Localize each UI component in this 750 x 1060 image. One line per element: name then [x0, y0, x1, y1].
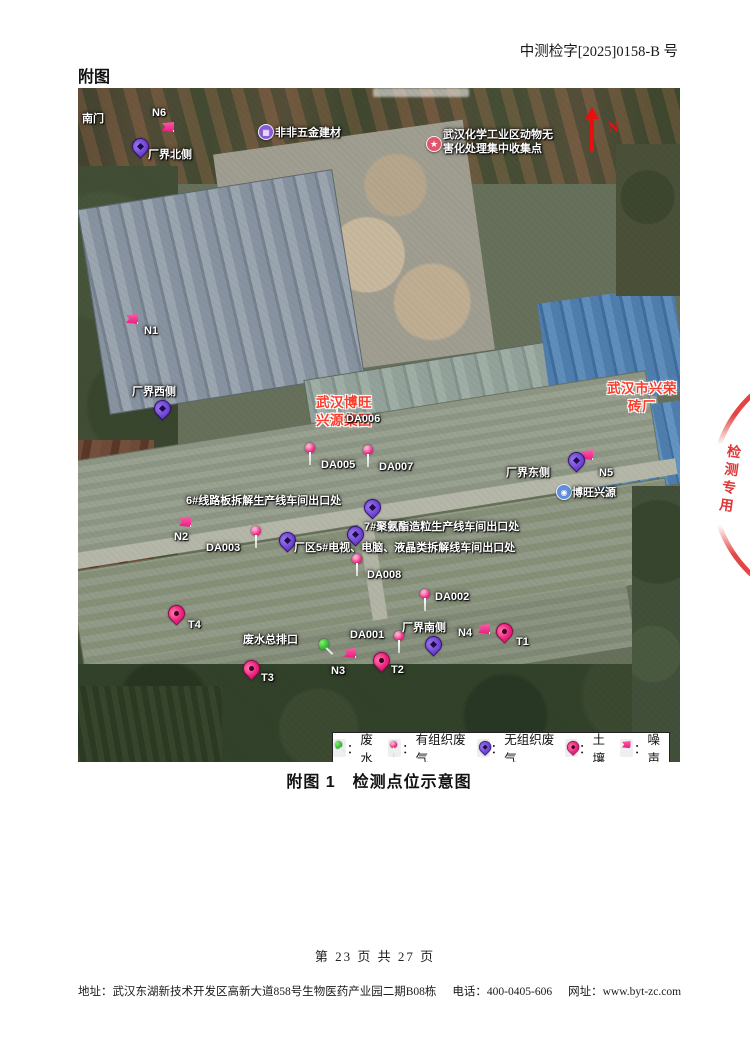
map-point-label: 南门: [82, 112, 104, 126]
organized-gas-balloon-icon: [420, 589, 430, 599]
map-point-label: 非非五金建材: [275, 126, 341, 140]
map-point-label: DA001: [350, 628, 384, 642]
noise-flag-icon: [179, 517, 191, 527]
seal-text: 检测专用: [715, 443, 745, 517]
organized-gas-balloon-icon: [352, 554, 362, 564]
map-point-label: N3: [331, 664, 345, 678]
poi-icon: ◉: [556, 484, 572, 500]
legend-item: ：土壤: [565, 729, 614, 763]
map-point-label: 厂界东侧: [506, 466, 550, 480]
map-point-label: N6: [152, 106, 166, 120]
map-point-label: T4: [188, 618, 201, 632]
spin-legend-icon: [565, 739, 578, 757]
footer-contact-line: 地址：武汉东湖新技术开发区高新大道858号生物医药产业园二期B08栋 电话：40…: [78, 983, 678, 999]
map-point-label: DA003: [206, 541, 240, 555]
legend-label: 有组织废气: [416, 729, 471, 763]
legend-item: ：噪声: [620, 729, 669, 763]
poi-icon: ▦: [258, 124, 274, 140]
doc-number: 中测检字[2025]0158-B 号: [520, 40, 678, 61]
page-number: 第 23 页 共 27 页: [0, 946, 750, 965]
document-page: { "page": { "doc_number": "中测检字[2025]015…: [0, 0, 750, 1060]
ppin-legend-icon: [477, 739, 490, 757]
marker-layer: 南门N6厂界北侧▦非非五金建材★武汉化学工业区动物无害化处理集中收集点N1厂界西…: [78, 88, 680, 762]
north-label: N: [608, 120, 619, 137]
map-point-label: DA006: [346, 412, 380, 426]
seal-ring-icon: [710, 392, 750, 582]
map-point-label: DA008: [367, 568, 401, 582]
legend-label: 废水: [360, 729, 382, 763]
star-poi-icon: ★: [426, 136, 442, 152]
map-point-label: DA007: [379, 460, 413, 474]
map-point-label: N4: [458, 626, 472, 640]
legend-label: 土壤: [593, 729, 615, 763]
balloon-legend-icon: [388, 739, 401, 757]
map-point-label: 厂区5#电视、电脑、液晶类拆解线车间出口处: [294, 541, 515, 555]
organized-gas-balloon-icon: [305, 443, 315, 453]
north-arrow-icon: [590, 118, 594, 152]
map-point-label: T2: [391, 663, 404, 677]
map-point-label: 厂界西侧: [132, 385, 176, 399]
noise-flag-icon: [478, 624, 490, 634]
soil-pin-icon: [492, 619, 516, 643]
flag-legend-icon: [620, 739, 633, 757]
map-point-label: DA002: [435, 590, 469, 604]
unorganized-gas-pin-icon: [150, 396, 174, 420]
section-heading: 附图: [78, 63, 110, 87]
map-legend: ：废水：有组织废气：无组织废气：土壤：噪声: [332, 732, 670, 762]
organized-gas-balloon-icon: [363, 445, 373, 455]
legend-label: 无组织废气: [504, 729, 559, 763]
organized-gas-balloon-icon: [251, 526, 261, 536]
legend-items: ：废水：有组织废气：无组织废气：土壤：噪声: [333, 729, 669, 763]
footer-address: 地址：武汉东湖新技术开发区高新大道858号生物医药产业园二期B08栋: [78, 983, 436, 999]
satellite-map-figure: N 南门N6厂界北侧▦非非五金建材★武汉化学工业区动物无害化处理集中收集点N1厂…: [78, 88, 680, 762]
map-point-label: N2: [174, 530, 188, 544]
figure-caption: 附图 1 检测点位示意图: [78, 768, 680, 792]
noise-flag-icon: [126, 314, 138, 324]
map-point-label: N1: [144, 324, 158, 338]
map-point-label: 武汉化学工业区动物无害化处理集中收集点: [443, 128, 553, 157]
map-place-label: 武汉市兴荣砖厂: [594, 380, 680, 415]
footer-website: 网址：www.byt-zc.com: [568, 983, 681, 999]
map-point-label: 厂界南侧: [402, 621, 446, 635]
soil-pin-icon: [164, 601, 188, 625]
legend-label: 噪声: [647, 729, 669, 763]
map-point-label: 7#聚氨酯造粒生产线车间出口处: [364, 520, 519, 534]
map-point-label: 废水总排口: [243, 633, 298, 647]
map-point-label: N5: [599, 466, 613, 480]
map-point-label: T1: [516, 635, 529, 649]
legend-item: ：有组织废气: [388, 729, 471, 763]
pushpin-legend-icon: [333, 739, 346, 757]
map-point-label: T3: [261, 671, 274, 685]
map-point-label: DA005: [321, 458, 355, 472]
map-point-label: 厂界北侧: [148, 148, 192, 162]
noise-flag-icon: [162, 122, 174, 132]
legend-item: ：废水: [333, 729, 382, 763]
soil-pin-icon: [239, 656, 263, 680]
footer-phone: 电话：400-0405-606: [452, 983, 552, 999]
map-point-label: 博旺兴源: [572, 486, 616, 500]
unorganized-gas-pin-icon: [360, 495, 384, 519]
red-seal-fragment: 检测专用: [694, 392, 750, 582]
unorganized-gas-pin-icon: [421, 632, 445, 656]
wastewater-pushpin-icon: [318, 638, 331, 651]
soil-pin-icon: [369, 648, 393, 672]
noise-flag-icon: [344, 648, 356, 658]
legend-item: ：无组织废气: [477, 729, 560, 763]
map-point-label: 6#线路板拆解生产线车间出口处: [186, 494, 341, 508]
